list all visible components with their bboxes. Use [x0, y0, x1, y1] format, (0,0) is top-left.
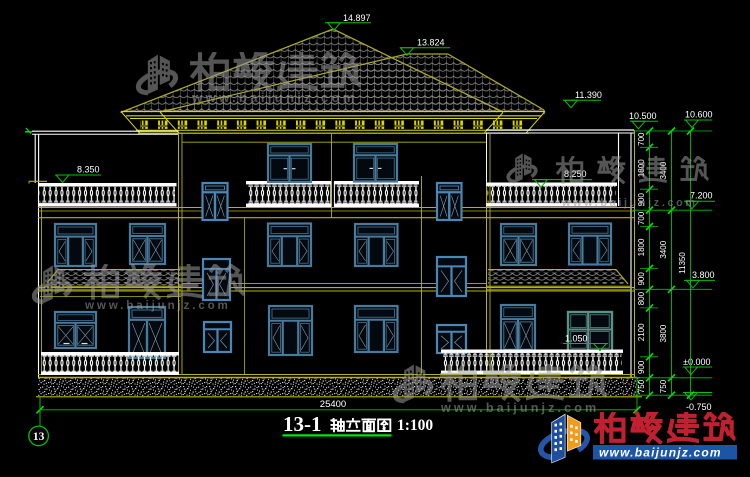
svg-text:750: 750	[659, 379, 668, 393]
svg-text:1:100: 1:100	[397, 417, 433, 434]
svg-text:800: 800	[637, 291, 646, 305]
svg-text:10.500: 10.500	[629, 111, 657, 121]
svg-text:±0.000: ±0.000	[683, 357, 710, 367]
svg-text:11350: 11350	[678, 252, 687, 274]
svg-text:700: 700	[637, 132, 646, 146]
svg-text:3.800: 3.800	[692, 270, 715, 280]
svg-text:14.897: 14.897	[343, 13, 371, 23]
svg-text:13: 13	[33, 431, 45, 443]
svg-text:900: 900	[637, 272, 646, 286]
svg-text:www.baijunjz.com: www.baijunjz.com	[440, 401, 599, 415]
svg-text:www.baijunjz.com: www.baijunjz.com	[191, 90, 358, 105]
svg-text:700: 700	[637, 211, 646, 225]
svg-text:www.baijunjz.com: www.baijunjz.com	[561, 197, 698, 209]
svg-text:10.600: 10.600	[685, 110, 713, 120]
svg-text:3800: 3800	[659, 324, 668, 342]
svg-text:13-1: 13-1	[283, 412, 322, 436]
svg-text:11.390: 11.390	[575, 90, 602, 100]
svg-text:25400: 25400	[320, 399, 346, 410]
svg-text:-0.750: -0.750	[686, 402, 712, 412]
svg-text:1.050: 1.050	[565, 334, 588, 344]
svg-text:900: 900	[637, 360, 646, 374]
svg-text:3400: 3400	[659, 240, 668, 258]
svg-text:www.baijunjz.com: www.baijunjz.com	[599, 446, 722, 460]
svg-text:2100: 2100	[637, 323, 646, 341]
svg-text:13.824: 13.824	[417, 38, 445, 48]
svg-text:www.baijunjz.com: www.baijunjz.com	[84, 299, 231, 312]
svg-text:1800: 1800	[637, 238, 646, 256]
svg-text:8.350: 8.350	[77, 165, 100, 175]
svg-text:750: 750	[637, 379, 646, 393]
